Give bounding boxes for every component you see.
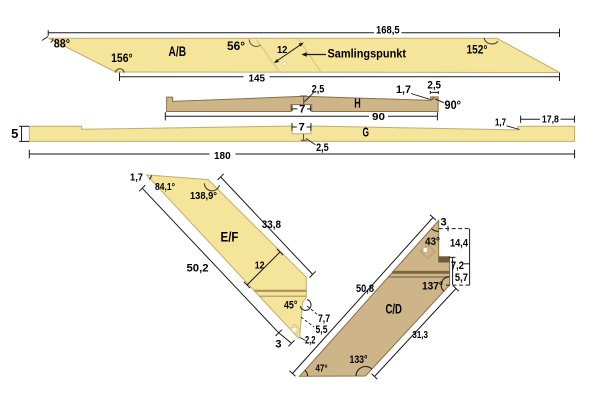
svg-text:A/B: A/B	[169, 44, 187, 59]
svg-text:133°: 133°	[350, 354, 368, 366]
svg-text:5: 5	[11, 126, 18, 141]
svg-text:E/F: E/F	[221, 230, 239, 245]
svg-text:5,5: 5,5	[316, 324, 328, 336]
svg-text:G: G	[363, 126, 370, 140]
svg-text:17,8: 17,8	[542, 114, 559, 125]
svg-text:50,2: 50,2	[187, 263, 209, 275]
svg-text:12: 12	[277, 44, 288, 56]
svg-text:7: 7	[299, 104, 305, 116]
svg-text:7: 7	[299, 121, 305, 133]
svg-text:Samlingspunkt: Samlingspunkt	[328, 48, 407, 60]
svg-text:2,2: 2,2	[305, 335, 316, 347]
svg-text:12: 12	[255, 260, 265, 272]
svg-text:43°: 43°	[425, 236, 440, 248]
svg-text:90°: 90°	[445, 100, 462, 112]
svg-text:180: 180	[214, 150, 231, 162]
svg-text:152°: 152°	[467, 42, 488, 56]
svg-text:45°: 45°	[284, 299, 298, 311]
svg-text:88°: 88°	[54, 36, 70, 50]
svg-text:1,7: 1,7	[130, 171, 143, 183]
svg-text:7,7: 7,7	[318, 313, 330, 325]
svg-text:1,7: 1,7	[495, 116, 506, 128]
svg-text:137°: 137°	[422, 281, 443, 293]
svg-text:138,9°: 138,9°	[190, 190, 217, 202]
svg-text:47°: 47°	[316, 362, 328, 374]
svg-text:2,5: 2,5	[427, 80, 441, 92]
svg-text:7,2: 7,2	[451, 260, 464, 272]
svg-text:3: 3	[440, 217, 446, 229]
svg-text:2,5: 2,5	[312, 83, 325, 95]
svg-text:56°: 56°	[227, 39, 245, 53]
svg-text:156°: 156°	[111, 51, 133, 65]
svg-text:33,8: 33,8	[262, 219, 281, 231]
svg-text:C/D: C/D	[385, 302, 402, 317]
svg-text:31,3: 31,3	[412, 329, 428, 341]
svg-text:H: H	[354, 97, 361, 111]
svg-text:5,7: 5,7	[455, 272, 468, 284]
svg-text:3: 3	[275, 338, 281, 350]
svg-text:50,8: 50,8	[356, 283, 374, 295]
svg-text:1,7: 1,7	[396, 84, 411, 96]
svg-text:84,1°: 84,1°	[155, 181, 175, 193]
svg-text:145: 145	[249, 73, 266, 85]
svg-text:90: 90	[372, 111, 385, 123]
svg-text:2,5: 2,5	[316, 142, 329, 154]
svg-text:14,4: 14,4	[450, 238, 469, 250]
svg-text:168,5: 168,5	[376, 24, 400, 36]
